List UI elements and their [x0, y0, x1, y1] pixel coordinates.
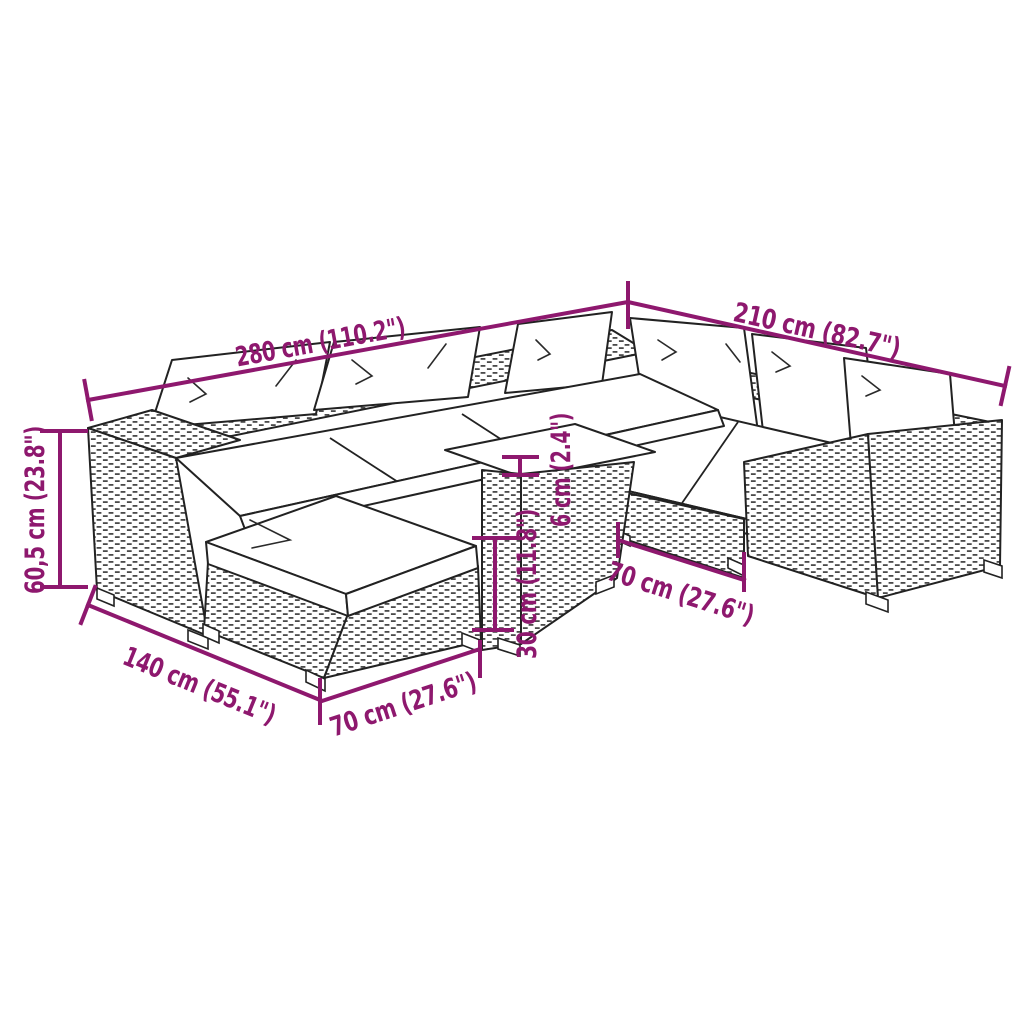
dimension-label-left-depth: 140 cm (55.1") — [118, 641, 280, 731]
dimension-label-back-height: 60,5 cm (23.8") — [20, 426, 51, 594]
sofa-line-art — [88, 312, 1002, 691]
product-dimension-diagram: 280 cm (110.2") 210 cm (82.7") 60,5 cm (… — [0, 0, 1024, 1024]
dimension-back-height: 60,5 cm (23.8") — [20, 426, 86, 594]
dimension-label-cushion-thickness: 6 cm (2.4") — [546, 413, 577, 527]
diagram-canvas: 280 cm (110.2") 210 cm (82.7") 60,5 cm (… — [0, 0, 1024, 1024]
dimension-label-seat-height: 30 cm (11.8") — [512, 509, 543, 659]
right-arm-front-face — [744, 434, 878, 598]
right-arm-outer-face — [868, 420, 1002, 598]
dimension-label-ottoman-width: 70 cm (27.6") — [326, 666, 480, 743]
back-cushion — [505, 312, 612, 393]
